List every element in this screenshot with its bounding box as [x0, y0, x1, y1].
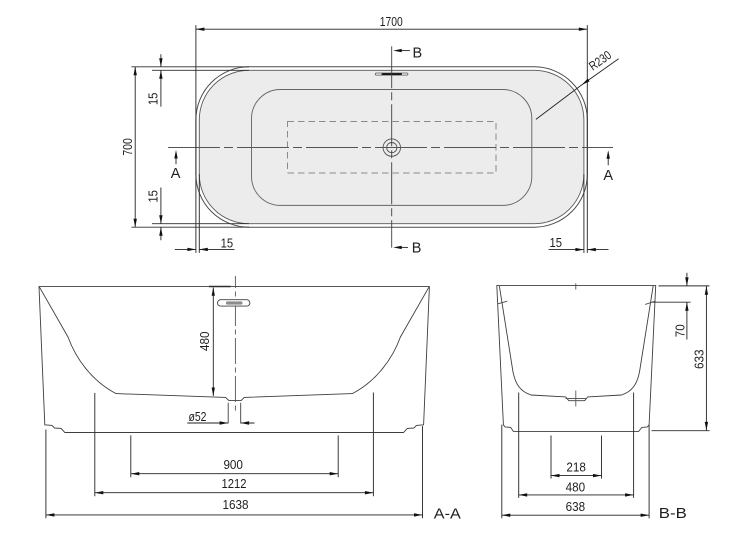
- svg-text:638: 638: [566, 500, 586, 514]
- svg-text:ø52: ø52: [189, 410, 207, 424]
- svg-text:B: B: [412, 240, 422, 256]
- svg-text:B-B: B-B: [659, 506, 687, 522]
- svg-text:B: B: [412, 46, 422, 62]
- svg-text:1212: 1212: [222, 477, 247, 491]
- svg-text:A: A: [603, 168, 613, 184]
- svg-text:1638: 1638: [223, 498, 249, 512]
- svg-text:1700: 1700: [380, 15, 403, 29]
- svg-text:218: 218: [566, 461, 586, 475]
- svg-text:633: 633: [692, 350, 706, 370]
- svg-text:480: 480: [198, 332, 212, 352]
- svg-text:15: 15: [221, 236, 234, 250]
- svg-text:700: 700: [121, 138, 135, 156]
- svg-text:A-A: A-A: [434, 507, 461, 523]
- svg-text:15: 15: [147, 190, 161, 203]
- svg-text:15: 15: [147, 93, 161, 106]
- svg-text:70: 70: [673, 324, 687, 337]
- svg-text:15: 15: [550, 236, 563, 250]
- svg-text:480: 480: [566, 480, 586, 494]
- svg-text:900: 900: [223, 458, 243, 472]
- svg-text:A: A: [171, 166, 181, 182]
